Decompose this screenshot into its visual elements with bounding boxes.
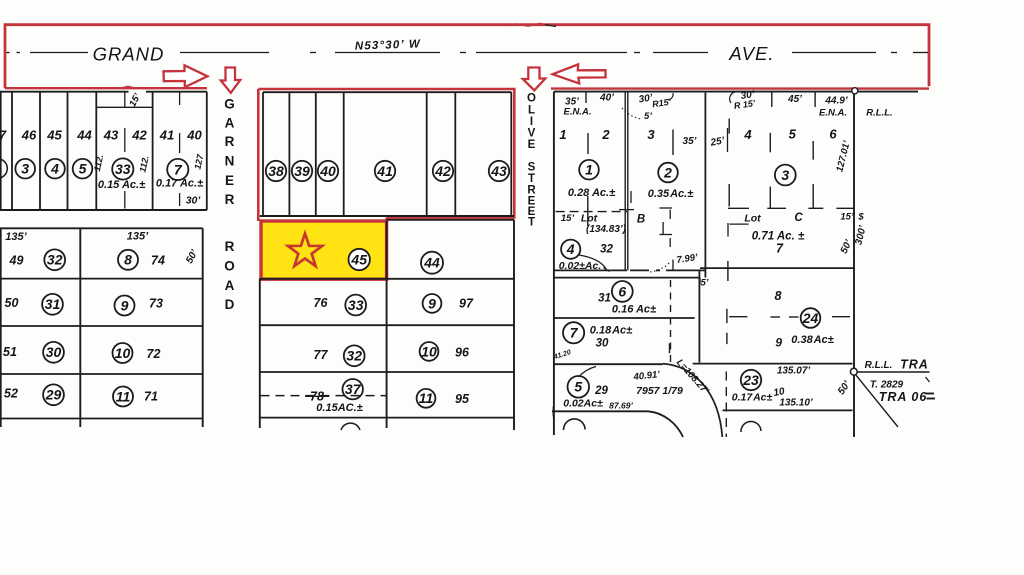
svg-text:135’: 135’ — [127, 231, 149, 243]
svg-text:0.17 Ac±: 0.17 Ac± — [732, 392, 773, 404]
svg-text:38: 38 — [268, 163, 284, 179]
svg-text:97: 97 — [459, 297, 474, 311]
svg-text:$: $ — [857, 212, 864, 223]
svg-text:24: 24 — [802, 310, 819, 326]
svg-text:2: 2 — [601, 127, 610, 142]
svg-text:9: 9 — [775, 336, 782, 350]
svg-text:41: 41 — [376, 163, 393, 179]
svg-text:32: 32 — [346, 348, 362, 364]
svg-text:E: E — [225, 173, 234, 188]
svg-text:40’: 40’ — [599, 93, 614, 104]
svg-text:5: 5 — [574, 379, 582, 395]
svg-text:O: O — [527, 93, 536, 105]
svg-text:GRAND: GRAND — [93, 44, 165, 65]
svg-text:71: 71 — [144, 390, 158, 404]
svg-text:15’: 15’ — [561, 213, 575, 224]
svg-text:11: 11 — [116, 388, 131, 404]
svg-text:29: 29 — [45, 387, 62, 403]
svg-text:135’: 135’ — [5, 231, 27, 243]
svg-text:6: 6 — [618, 283, 626, 299]
svg-text:TRA 06: TRA 06 — [879, 390, 928, 404]
svg-text:D: D — [225, 297, 235, 312]
svg-text:7957 1/79: 7957 1/79 — [636, 385, 683, 397]
svg-text:T: T — [528, 217, 535, 229]
svg-text:5: 5 — [789, 127, 797, 142]
svg-text:3: 3 — [21, 161, 29, 177]
svg-text:7: 7 — [0, 128, 7, 143]
svg-text:32: 32 — [47, 252, 63, 268]
svg-text:0.38 Ac±: 0.38 Ac± — [791, 334, 833, 346]
svg-text:0.17 Ac.±: 0.17 Ac.± — [156, 178, 203, 190]
svg-text:S: S — [528, 162, 536, 174]
svg-text:42: 42 — [434, 163, 451, 179]
svg-text:Lot: Lot — [744, 213, 761, 225]
svg-text:43: 43 — [103, 128, 119, 143]
svg-text:7: 7 — [776, 242, 784, 256]
svg-text:0.02Ac±: 0.02Ac± — [563, 398, 603, 410]
svg-text:R: R — [225, 239, 235, 254]
svg-text:8: 8 — [775, 289, 782, 303]
svg-text:R: R — [225, 134, 235, 149]
svg-text:30’: 30’ — [186, 195, 202, 207]
svg-text:96: 96 — [455, 346, 470, 360]
svg-text:73: 73 — [149, 297, 163, 311]
svg-text:30: 30 — [596, 338, 609, 350]
svg-text:135.10’: 135.10’ — [779, 398, 813, 409]
svg-text:N: N — [225, 154, 235, 169]
svg-text:8: 8 — [124, 252, 132, 268]
svg-text:2: 2 — [663, 164, 672, 180]
svg-text:32: 32 — [600, 244, 613, 256]
svg-text:9: 9 — [121, 297, 129, 313]
svg-text:4: 4 — [566, 241, 575, 257]
svg-text:R.L.L.: R.L.L. — [865, 360, 893, 371]
svg-text:R.L.L.: R.L.L. — [866, 108, 892, 119]
svg-text:6: 6 — [829, 127, 837, 142]
svg-text:43: 43 — [490, 163, 507, 179]
svg-text:3: 3 — [781, 167, 789, 183]
svg-text:(134.83’): (134.83’) — [586, 224, 627, 235]
svg-text:44: 44 — [423, 255, 440, 271]
svg-text:87.69’: 87.69’ — [609, 401, 633, 411]
svg-text:V: V — [528, 128, 536, 140]
svg-text:1: 1 — [559, 127, 566, 142]
svg-text:0.15AC.±: 0.15AC.± — [316, 402, 362, 414]
svg-text:O: O — [224, 259, 235, 274]
svg-text:52: 52 — [4, 387, 18, 401]
svg-text:135.07’: 135.07’ — [777, 366, 811, 377]
svg-text:5’: 5’ — [701, 278, 709, 289]
svg-text:15’: 15’ — [840, 212, 854, 223]
svg-text:4: 4 — [743, 127, 752, 142]
svg-text:0.18 Ac±: 0.18 Ac± — [590, 325, 632, 337]
svg-text:31: 31 — [45, 296, 61, 312]
svg-text:B: B — [637, 214, 645, 226]
svg-text:1: 1 — [585, 162, 593, 178]
svg-text:50: 50 — [5, 296, 19, 310]
svg-text:11: 11 — [419, 390, 434, 406]
svg-text:G: G — [224, 97, 235, 112]
svg-text:33: 33 — [348, 297, 364, 313]
svg-text:N53°30’ W: N53°30’ W — [355, 38, 421, 52]
svg-text:E: E — [528, 139, 536, 151]
svg-text:R: R — [225, 192, 235, 207]
svg-text:33: 33 — [115, 161, 131, 177]
svg-text:72: 72 — [147, 347, 161, 361]
svg-text:49: 49 — [9, 254, 24, 268]
svg-text:30: 30 — [46, 344, 62, 360]
svg-text:40: 40 — [186, 128, 202, 143]
svg-text:4: 4 — [50, 161, 59, 177]
svg-text:39: 39 — [294, 163, 310, 179]
svg-text:29: 29 — [594, 385, 608, 397]
svg-text:A: A — [225, 116, 235, 131]
svg-text:40: 40 — [319, 163, 336, 179]
svg-text:5’: 5’ — [644, 111, 652, 122]
svg-text:9: 9 — [428, 295, 436, 311]
svg-text:10: 10 — [421, 343, 437, 359]
svg-text:7: 7 — [174, 161, 183, 177]
svg-text:Lot: Lot — [581, 213, 598, 225]
svg-text:76: 76 — [314, 296, 329, 310]
svg-text:74: 74 — [151, 253, 165, 267]
svg-text:0.15 Ac.±: 0.15 Ac.± — [98, 179, 145, 191]
svg-text:44: 44 — [76, 128, 92, 143]
svg-text:95: 95 — [455, 392, 470, 406]
svg-text:31: 31 — [598, 293, 611, 305]
svg-text:7: 7 — [570, 325, 579, 341]
svg-text:3: 3 — [647, 127, 655, 142]
svg-text:10: 10 — [115, 345, 131, 361]
svg-text:45’: 45’ — [787, 94, 802, 105]
svg-text:0.35 Ac.±: 0.35 Ac.± — [648, 188, 693, 200]
svg-text:I: I — [530, 116, 533, 128]
svg-text:41: 41 — [159, 128, 174, 143]
svg-text:23: 23 — [742, 372, 759, 388]
svg-text:77: 77 — [314, 348, 329, 362]
svg-text:46: 46 — [21, 128, 37, 143]
svg-text:C: C — [794, 212, 803, 224]
svg-text:44.9’: 44.9’ — [824, 96, 847, 107]
svg-text:0.16 Ac±: 0.16 Ac± — [612, 304, 656, 316]
svg-text:AVE.: AVE. — [728, 43, 774, 64]
svg-text:51: 51 — [3, 345, 17, 359]
svg-text:42: 42 — [131, 128, 147, 143]
svg-text:T: T — [528, 173, 535, 185]
svg-text:E.N.A.: E.N.A. — [564, 107, 592, 118]
svg-text:TRA: TRA — [900, 358, 929, 372]
svg-text:L: L — [528, 105, 535, 117]
svg-text:0.28 Ac.±: 0.28 Ac.± — [568, 187, 615, 199]
svg-text:45: 45 — [350, 251, 367, 267]
svg-text:A: A — [225, 278, 235, 293]
svg-text:T. 2829: T. 2829 — [870, 380, 904, 391]
svg-text:37: 37 — [345, 381, 362, 397]
svg-text:45: 45 — [46, 128, 62, 143]
svg-text:E.N.A.: E.N.A. — [819, 108, 847, 119]
svg-text:5: 5 — [79, 161, 87, 177]
svg-text:35’: 35’ — [683, 136, 697, 147]
